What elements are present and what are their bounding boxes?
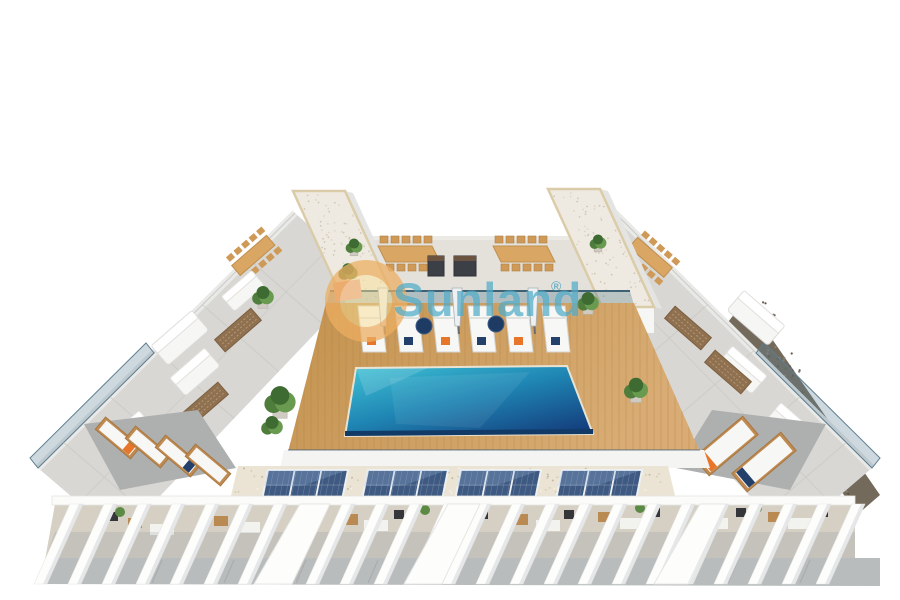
gravel-dot bbox=[600, 217, 602, 219]
gravel-dot bbox=[586, 264, 588, 266]
foliage bbox=[342, 263, 354, 275]
gravel-dot bbox=[451, 492, 453, 494]
gravel-dot bbox=[789, 365, 791, 367]
lounger-towel bbox=[477, 337, 486, 345]
gravel-dot bbox=[321, 247, 323, 249]
gravel-dot bbox=[451, 477, 453, 479]
gravel-dot bbox=[360, 232, 362, 234]
gravel-dot bbox=[380, 281, 382, 283]
gravel-dot bbox=[341, 231, 343, 233]
gravel-dot bbox=[847, 493, 849, 495]
gravel-dot bbox=[579, 216, 581, 218]
gravel-dot bbox=[783, 357, 785, 359]
lounger-towel bbox=[514, 337, 523, 345]
gravel-dot bbox=[774, 346, 776, 348]
bbq-unit-top bbox=[454, 256, 476, 261]
gravel-dot bbox=[615, 230, 617, 232]
gravel-dot bbox=[324, 241, 326, 243]
gravel-dot bbox=[595, 260, 597, 262]
gravel-dot bbox=[340, 243, 342, 245]
gravel-dot bbox=[587, 228, 589, 230]
facade-band bbox=[280, 450, 710, 468]
gravel-dot bbox=[458, 467, 460, 469]
gravel-dot bbox=[545, 489, 547, 491]
gravel-dot bbox=[243, 467, 245, 469]
dining-table bbox=[493, 246, 555, 262]
dining-chair bbox=[512, 264, 520, 271]
gravel-dot bbox=[634, 282, 636, 284]
gravel-dot bbox=[619, 242, 621, 244]
dining-chair bbox=[397, 264, 405, 271]
gravel-dot bbox=[350, 487, 352, 489]
gravel-dot bbox=[256, 488, 258, 490]
gravel-dot bbox=[602, 253, 604, 255]
gravel-dot bbox=[349, 237, 351, 239]
gravel-dot bbox=[604, 283, 606, 285]
gravel-dot bbox=[648, 300, 650, 302]
gravel-dot bbox=[585, 235, 587, 237]
pergola-level bbox=[34, 496, 880, 586]
gravel-dot bbox=[304, 208, 306, 210]
gravel-dot bbox=[352, 215, 354, 217]
gravel-dot bbox=[798, 371, 800, 373]
gravel-dot bbox=[624, 251, 626, 253]
gravel-dot bbox=[656, 476, 658, 478]
gravel-dot bbox=[649, 474, 651, 476]
gravel-dot bbox=[585, 213, 587, 215]
gravel-dot bbox=[250, 470, 252, 472]
lounger-towel bbox=[441, 337, 450, 345]
gravel-dot bbox=[553, 195, 555, 197]
gravel-dot bbox=[253, 475, 255, 477]
gravel-dot bbox=[764, 302, 766, 304]
solar-panel-array bbox=[556, 470, 642, 500]
gravel-dot bbox=[325, 205, 327, 207]
gravel-dot bbox=[594, 273, 596, 275]
gravel-dot bbox=[594, 208, 596, 210]
gravel-dot bbox=[762, 301, 764, 303]
rooftop-scene bbox=[0, 0, 900, 600]
gravel-dot bbox=[578, 229, 580, 231]
dining-chair bbox=[501, 264, 509, 271]
foliage bbox=[257, 286, 270, 299]
solar-panel-array bbox=[455, 470, 541, 500]
gravel-dot bbox=[327, 208, 329, 210]
lounger-towel bbox=[404, 337, 413, 345]
gravel-dot bbox=[549, 487, 551, 489]
gravel-dot bbox=[563, 197, 565, 199]
gravel-dot bbox=[343, 262, 345, 264]
dining-chair bbox=[256, 227, 265, 236]
gravel-dot bbox=[449, 490, 451, 492]
solar-panel-array bbox=[262, 470, 348, 500]
gravel-dot bbox=[570, 196, 572, 198]
foliage bbox=[582, 292, 595, 305]
gravel-dot bbox=[644, 299, 646, 301]
gravel-dot bbox=[334, 250, 336, 252]
gravel-dot bbox=[593, 232, 595, 234]
dining-chair bbox=[495, 236, 503, 243]
gravel-dot bbox=[317, 194, 319, 196]
gravel-dot bbox=[584, 226, 586, 228]
dining-chair bbox=[539, 236, 547, 243]
pergola-furniture-item bbox=[214, 516, 228, 526]
foliage bbox=[629, 378, 643, 392]
gravel-dot bbox=[639, 280, 641, 282]
gravel-dot bbox=[845, 490, 847, 492]
dining-chair bbox=[233, 246, 242, 255]
pergola-furniture-item bbox=[564, 510, 574, 519]
gravel-dot bbox=[601, 219, 603, 221]
gravel-dot bbox=[600, 281, 602, 283]
architectural-render: Sunland ® bbox=[0, 0, 900, 600]
gravel-dot bbox=[573, 210, 575, 212]
gravel-dot bbox=[556, 476, 558, 478]
gravel-dot bbox=[645, 489, 647, 491]
gravel-dot bbox=[320, 221, 322, 223]
gravel-dot bbox=[318, 202, 320, 204]
gravel-dot bbox=[347, 488, 349, 490]
gravel-dot bbox=[619, 240, 621, 242]
gravel-dot bbox=[365, 288, 367, 290]
gravel-dot bbox=[607, 238, 609, 240]
gravel-dot bbox=[540, 490, 542, 492]
gravel-dot bbox=[345, 236, 347, 238]
dining-chair bbox=[226, 253, 235, 262]
gravel-dot bbox=[630, 286, 632, 288]
gravel-dot bbox=[547, 474, 549, 476]
gravel-dot bbox=[333, 254, 335, 256]
dining-chair bbox=[506, 236, 514, 243]
gravel-dot bbox=[338, 204, 340, 206]
foliage bbox=[349, 238, 359, 248]
gravel-dot bbox=[588, 234, 590, 236]
gravel-dot bbox=[328, 236, 330, 238]
foliage bbox=[593, 234, 603, 244]
gravel-dot bbox=[582, 209, 584, 211]
gravel-dot bbox=[351, 477, 353, 479]
gravel-dot bbox=[585, 211, 587, 213]
gravel-dot bbox=[334, 230, 336, 232]
gravel-dot bbox=[607, 264, 609, 266]
gravel-dot bbox=[611, 274, 613, 276]
gravel-dot bbox=[577, 198, 579, 200]
gravel-dot bbox=[629, 281, 631, 283]
foliage bbox=[266, 416, 279, 429]
gravel-dot bbox=[622, 253, 624, 255]
dining-chair bbox=[413, 236, 421, 243]
sun-lounger bbox=[542, 306, 570, 352]
gravel-dot bbox=[635, 286, 637, 288]
dining-chair bbox=[402, 236, 410, 243]
gravel-dot bbox=[238, 491, 240, 493]
gravel-dot bbox=[358, 229, 360, 231]
lounger-cushion bbox=[505, 306, 533, 352]
gravel-dot bbox=[659, 481, 661, 483]
dining-chair bbox=[380, 236, 388, 243]
dining-chair bbox=[408, 264, 416, 271]
gravel-dot bbox=[363, 245, 365, 247]
potted-plant bbox=[261, 416, 283, 435]
gravel-dot bbox=[791, 352, 793, 354]
gravel-dot bbox=[356, 266, 358, 268]
dining-chair bbox=[517, 236, 525, 243]
gravel-dot bbox=[322, 238, 324, 240]
gravel-dot bbox=[555, 491, 557, 493]
gravel-dot bbox=[605, 263, 607, 265]
gravel-dot bbox=[360, 256, 362, 258]
pool-pouf bbox=[488, 316, 504, 332]
dining-chair bbox=[424, 236, 432, 243]
gravel-dot bbox=[315, 199, 317, 201]
dining-chair bbox=[523, 264, 531, 271]
gravel-dot bbox=[645, 474, 647, 476]
gravel-dot bbox=[334, 202, 336, 204]
gravel-dot bbox=[328, 232, 330, 234]
gravel-dot bbox=[584, 231, 586, 233]
gravel-dot bbox=[343, 232, 345, 234]
gravel-dot bbox=[576, 244, 578, 246]
gravel-dot bbox=[323, 215, 325, 217]
gravel-dot bbox=[323, 252, 325, 254]
dining-chair bbox=[671, 257, 680, 266]
lounger-towel bbox=[367, 337, 376, 345]
gravel-dot bbox=[324, 248, 326, 250]
gravel-dot bbox=[554, 488, 556, 490]
gravel-dot bbox=[634, 272, 636, 274]
swimming-pool bbox=[345, 366, 593, 436]
solar-panel-array bbox=[362, 470, 448, 500]
dining-chair bbox=[419, 264, 427, 271]
gravel-dot bbox=[578, 241, 580, 243]
gravel-dot bbox=[620, 246, 622, 248]
solar-roof-band bbox=[230, 466, 676, 500]
gravel-dot bbox=[591, 273, 593, 275]
gravel-dot bbox=[362, 253, 364, 255]
dining-chair bbox=[241, 240, 250, 249]
bbq-unit-top bbox=[428, 256, 444, 261]
gravel-dot bbox=[357, 479, 359, 481]
gravel-dot bbox=[552, 480, 554, 482]
gravel-dot bbox=[603, 206, 605, 208]
pergola-furniture-item bbox=[394, 510, 404, 519]
pool-pouf bbox=[416, 318, 432, 334]
gravel-dot bbox=[635, 303, 637, 305]
gravel-dot bbox=[546, 477, 548, 479]
gravel-dot bbox=[658, 473, 660, 475]
gravel-dot bbox=[261, 476, 263, 478]
dining-chair bbox=[391, 236, 399, 243]
dining-chair bbox=[249, 233, 258, 242]
dining-set bbox=[493, 236, 555, 271]
gravel-dot bbox=[235, 491, 237, 493]
gravel-dot bbox=[612, 257, 614, 259]
gravel-dot bbox=[642, 473, 644, 475]
pink-planter bbox=[333, 279, 362, 302]
gravel-dot bbox=[333, 243, 335, 245]
potted-plant bbox=[264, 386, 295, 418]
gravel-dot bbox=[363, 279, 365, 281]
gravel-dot bbox=[321, 229, 323, 231]
gravel-dot bbox=[345, 223, 347, 225]
gravel-dot bbox=[331, 239, 333, 241]
gravel-dot bbox=[626, 256, 628, 258]
gravel-dot bbox=[320, 225, 322, 227]
gravel-dot bbox=[328, 211, 330, 213]
gravel-dot bbox=[594, 205, 596, 207]
dining-chair bbox=[534, 264, 542, 271]
facade-wall bbox=[280, 450, 710, 468]
gravel-dot bbox=[609, 259, 611, 261]
gravel-dot bbox=[370, 254, 372, 256]
gravel-dot bbox=[570, 192, 572, 194]
gravel-dot bbox=[599, 205, 601, 207]
planter-box bbox=[333, 279, 362, 302]
gravel-dot bbox=[605, 249, 607, 251]
gravel-dot bbox=[576, 201, 578, 203]
gravel-dot bbox=[327, 223, 329, 225]
dining-chair bbox=[528, 236, 536, 243]
lounger-cushion bbox=[542, 306, 570, 352]
gravel-dot bbox=[349, 486, 351, 488]
lounger-towel bbox=[551, 337, 560, 345]
foliage bbox=[271, 386, 290, 405]
gravel-dot bbox=[334, 222, 336, 224]
gravel-dot bbox=[586, 206, 588, 208]
gravel-dot bbox=[616, 267, 618, 269]
gravel-dot bbox=[308, 200, 310, 202]
gravel-dot bbox=[598, 252, 600, 254]
gravel-dot bbox=[344, 223, 346, 225]
gravel-dot bbox=[326, 234, 328, 236]
gravel-dot bbox=[368, 251, 370, 253]
dining-chair bbox=[545, 264, 553, 271]
gravel-dot bbox=[307, 195, 309, 197]
pergola-plant bbox=[115, 507, 125, 517]
sun-lounger bbox=[505, 306, 533, 352]
